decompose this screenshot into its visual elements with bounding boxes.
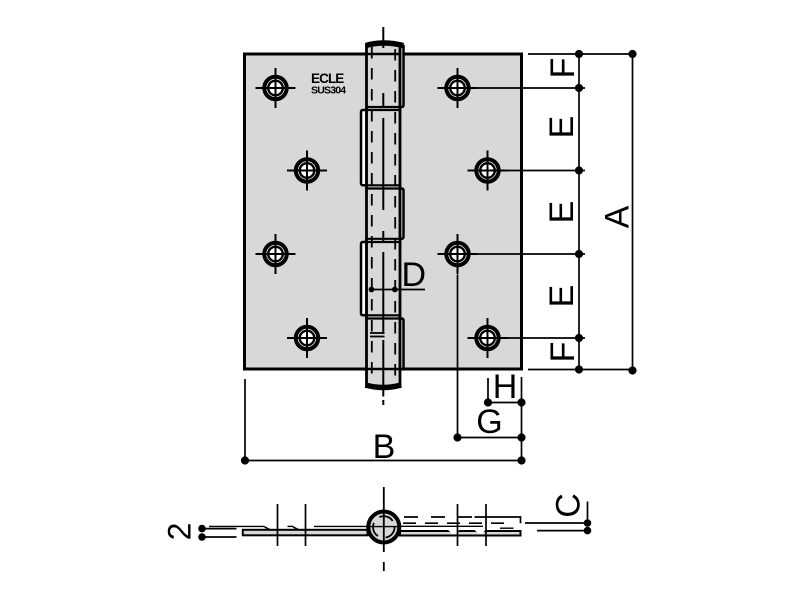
svg-text:A: A (599, 205, 637, 228)
svg-text:E: E (543, 116, 581, 139)
svg-text:B: B (373, 428, 396, 466)
svg-text:F: F (544, 58, 582, 79)
svg-text:SUS304: SUS304 (311, 85, 346, 97)
svg-text:C: C (550, 493, 588, 518)
svg-text:F: F (544, 342, 582, 363)
svg-text:E: E (543, 285, 581, 308)
svg-text:E: E (543, 201, 581, 224)
svg-text:G: G (476, 403, 502, 441)
svg-text:H: H (493, 368, 518, 406)
svg-text:D: D (402, 256, 427, 294)
svg-text:2: 2 (162, 523, 198, 541)
